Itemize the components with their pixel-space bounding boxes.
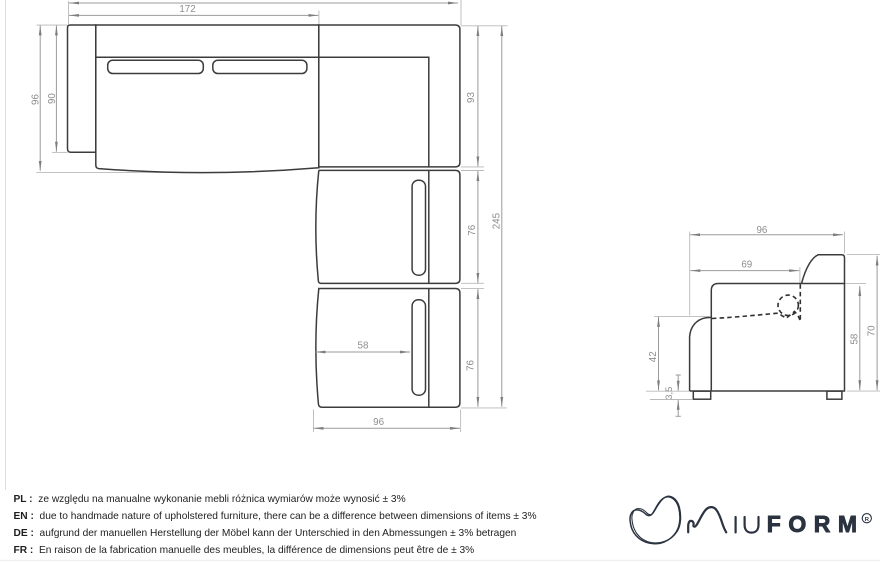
svg-text:70: 70: [866, 325, 877, 336]
svg-text:58: 58: [850, 333, 861, 344]
svg-text:69: 69: [741, 260, 752, 271]
svg-text:90: 90: [47, 93, 58, 104]
svg-text:42: 42: [648, 351, 659, 362]
svg-text:FORM: FORM: [767, 511, 865, 537]
svg-text:96: 96: [756, 225, 767, 236]
svg-text:172: 172: [179, 4, 195, 15]
svg-text:58: 58: [358, 341, 369, 352]
svg-text:3,5: 3,5: [664, 387, 674, 400]
svg-text:93: 93: [466, 92, 477, 103]
svg-text:245: 245: [491, 212, 502, 229]
svg-text:96: 96: [373, 417, 384, 428]
svg-text:96: 96: [30, 94, 41, 105]
svg-text:76: 76: [467, 224, 478, 235]
svg-text:76: 76: [465, 360, 476, 371]
